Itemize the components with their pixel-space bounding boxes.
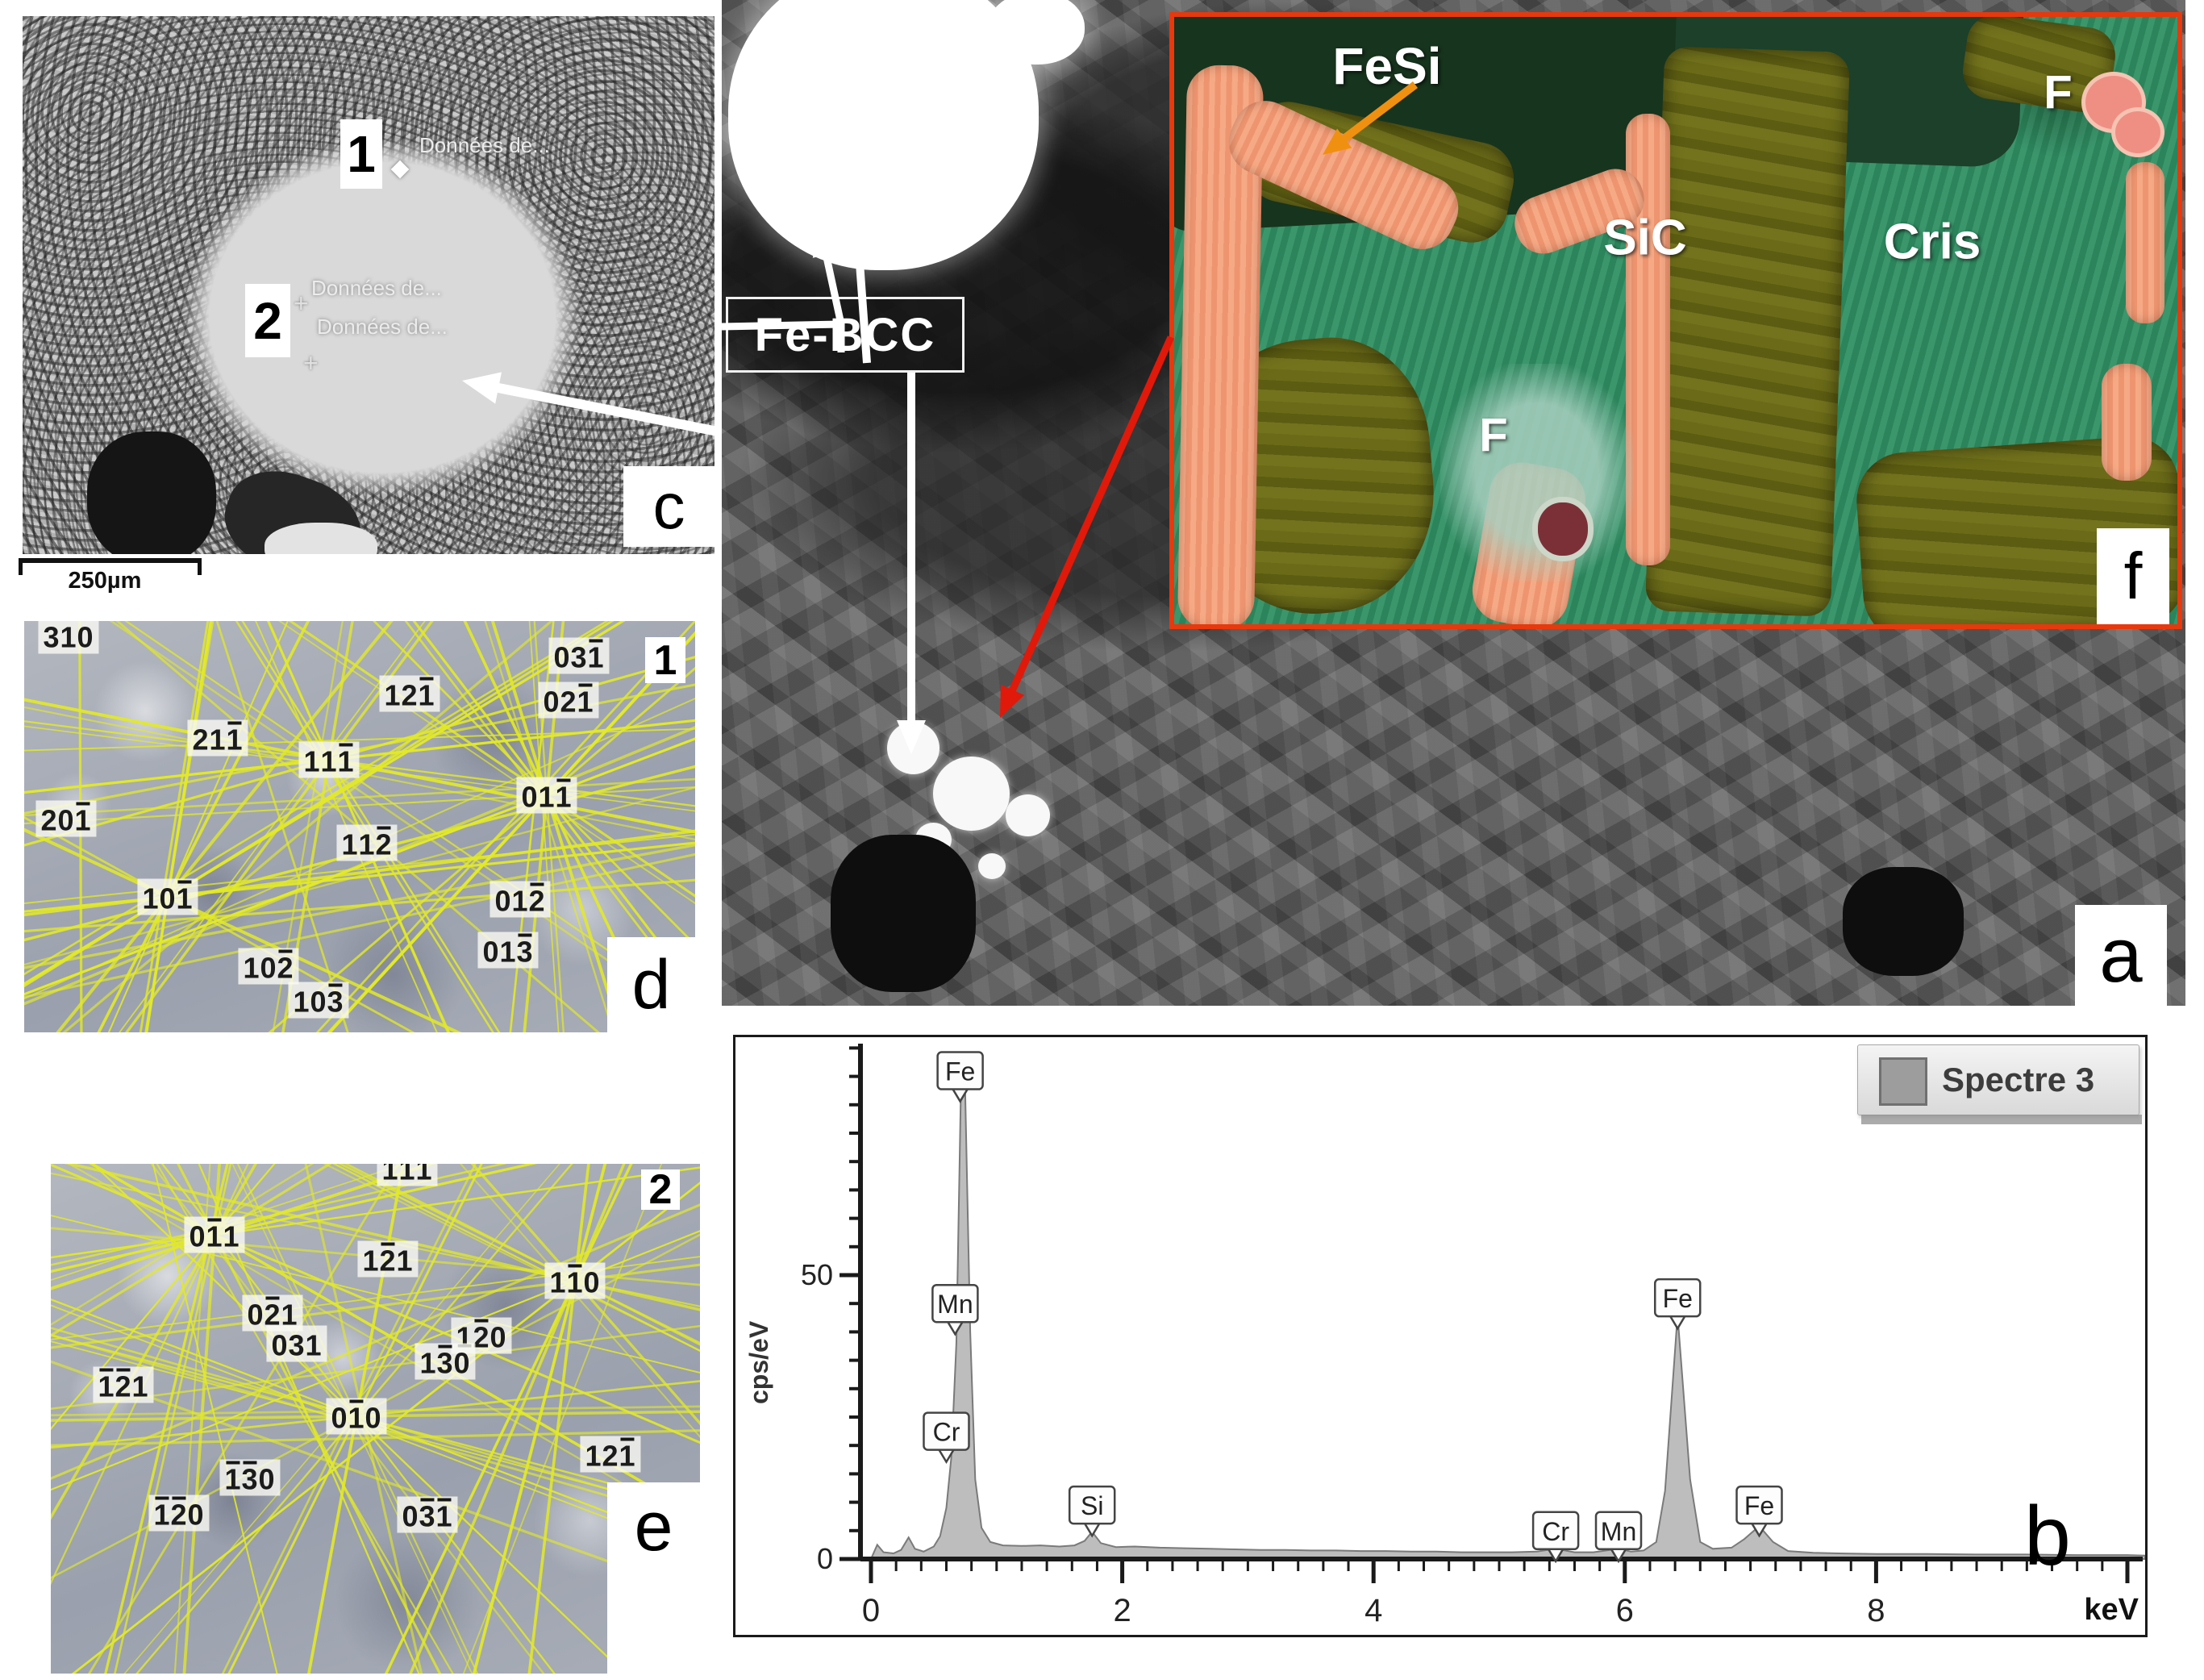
panel-tag-d: d xyxy=(607,937,695,1032)
svg-text:4: 4 xyxy=(1364,1593,1382,1628)
panel-c-sem-inclusion: 1 Données de... 2 + Données de... + Donn… xyxy=(23,16,715,554)
panel-tag-e: e xyxy=(607,1486,700,1567)
kikuchi-index: 012 xyxy=(490,882,550,918)
kikuchi-index: 120 xyxy=(148,1495,209,1532)
fesi-arrow-layer xyxy=(1174,17,2177,624)
panel-d-ebsd-pattern-1: 3101210310212111110112011121010120131021… xyxy=(24,621,695,1032)
kikuchi-index: 013 xyxy=(477,932,538,969)
svg-text:keV: keV xyxy=(2084,1593,2139,1627)
panel-tag-b: b xyxy=(2024,1489,2071,1585)
kikuchi-index: 121 xyxy=(93,1367,153,1403)
kikuchi-index: 130 xyxy=(415,1344,475,1380)
kikuchi-index: 121 xyxy=(580,1436,640,1473)
svg-text:Cr: Cr xyxy=(1542,1517,1569,1546)
kikuchi-index: 103 xyxy=(288,982,348,1019)
svg-text:Fe: Fe xyxy=(1663,1284,1693,1313)
svg-text:Si: Si xyxy=(1081,1491,1103,1520)
kikuchi-index: 112 xyxy=(336,825,397,861)
kikuchi-index: 010 xyxy=(326,1399,386,1435)
svg-text:Fe: Fe xyxy=(945,1057,975,1086)
legend-swatch xyxy=(1879,1057,1927,1106)
kikuchi-index: 310 xyxy=(38,621,98,654)
panel-e-ebsd-pattern-2: 1110111211100211200311301210101211301200… xyxy=(51,1164,700,1674)
kikuchi-index: 101 xyxy=(137,879,198,915)
figure-canvas: 1 Données de... 2 + Données de... + Donn… xyxy=(0,0,2204,1680)
svg-text:0: 0 xyxy=(862,1593,880,1628)
grain-marker-1: 1 xyxy=(645,637,685,683)
legend-label: Spectre 3 xyxy=(1942,1045,2094,1115)
kikuchi-index: 011 xyxy=(516,777,577,814)
kikuchi-index: 130 xyxy=(219,1460,280,1496)
panel-b-eds-spectrum: 050cps/eV02468keVFeMnCrSiCrMnFeFe Spectr… xyxy=(733,1035,2148,1637)
scalebar-label: 250µm xyxy=(32,568,177,594)
svg-text:Cr: Cr xyxy=(933,1418,960,1447)
kikuchi-index: 111 xyxy=(377,1164,437,1186)
panel-f-phase-map: FeSi SiC Cris F F f xyxy=(1169,12,2182,629)
svg-text:Mn: Mn xyxy=(937,1290,973,1319)
legend: Spectre 3 xyxy=(1857,1044,2139,1115)
svg-text:8: 8 xyxy=(1867,1593,1885,1628)
kikuchi-index: 211 xyxy=(187,720,248,757)
svg-text:6: 6 xyxy=(1616,1593,1634,1628)
kikuchi-index: 121 xyxy=(357,1241,418,1278)
kikuchi-index: 031 xyxy=(266,1326,327,1362)
kikuchi-index: 121 xyxy=(379,676,440,712)
svg-text:Mn: Mn xyxy=(1601,1517,1636,1546)
kikuchi-index: 102 xyxy=(238,948,298,985)
kikuchi-index: 110 xyxy=(544,1263,605,1299)
kikuchi-index: 111 xyxy=(298,742,359,778)
kikuchi-index: 011 xyxy=(184,1217,244,1253)
svg-text:Fe: Fe xyxy=(1744,1491,1774,1520)
kikuchi-index: 031 xyxy=(548,638,609,674)
svg-text:cps/eV: cps/eV xyxy=(744,1320,773,1404)
svg-text:2: 2 xyxy=(1113,1593,1131,1628)
inclusion-arrow-layer xyxy=(23,16,715,554)
svg-text:0: 0 xyxy=(817,1542,833,1575)
svg-text:50: 50 xyxy=(801,1258,833,1291)
kikuchi-index: 021 xyxy=(538,682,598,719)
grain-marker-2: 2 xyxy=(641,1169,680,1210)
kikuchi-index: 201 xyxy=(35,801,96,837)
spectrum-chart: 050cps/eV02468keVFeMnCrSiCrMnFeFe xyxy=(735,1037,2145,1635)
kikuchi-index: 031 xyxy=(397,1497,457,1533)
